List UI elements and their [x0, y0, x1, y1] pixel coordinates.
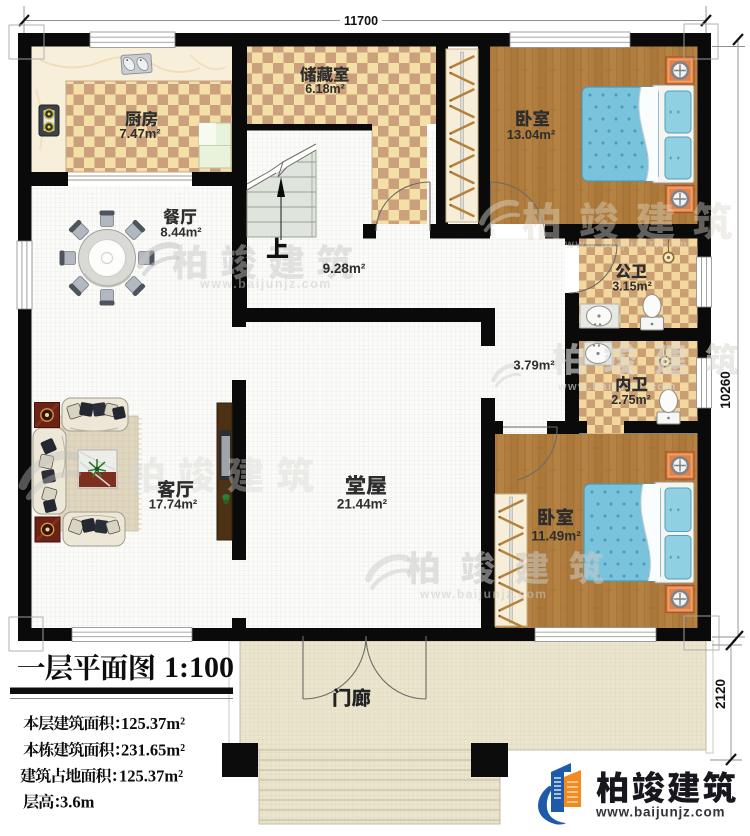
- svg-text:2.75m²: 2.75m²: [611, 393, 651, 407]
- svg-text:10260: 10260: [718, 371, 733, 409]
- svg-text:6.18m²: 6.18m²: [305, 82, 345, 96]
- svg-text:13.04m²: 13.04m²: [507, 127, 556, 142]
- svg-text:www.baijunjz.com: www.baijunjz.com: [595, 805, 725, 820]
- svg-text:3.6m: 3.6m: [60, 793, 95, 812]
- svg-text:www.baijunjz.com: www.baijunjz.com: [564, 239, 688, 251]
- svg-text:17.74m²: 17.74m²: [149, 497, 198, 512]
- svg-text:www.baijunjz.com: www.baijunjz.com: [419, 587, 548, 601]
- svg-text:11.49m²: 11.49m²: [531, 529, 581, 544]
- svg-text:1:100: 1:100: [164, 651, 234, 684]
- svg-text:11700: 11700: [344, 14, 378, 28]
- svg-text:9.28m²: 9.28m²: [323, 261, 366, 276]
- svg-text:3.79m²: 3.79m²: [513, 358, 555, 373]
- svg-text:231.65m²: 231.65m²: [121, 741, 185, 760]
- svg-text:3.15m²: 3.15m²: [612, 280, 652, 294]
- svg-text:7.47m²: 7.47m²: [119, 126, 161, 141]
- svg-text:8.44m²: 8.44m²: [160, 225, 202, 240]
- svg-text:21.44m²: 21.44m²: [337, 497, 388, 512]
- svg-text:www.baijunjz.com: www.baijunjz.com: [199, 277, 332, 291]
- svg-text:125.37m²: 125.37m²: [121, 714, 185, 733]
- svg-text:2120: 2120: [713, 679, 728, 709]
- svg-text:125.37m²: 125.37m²: [119, 767, 183, 786]
